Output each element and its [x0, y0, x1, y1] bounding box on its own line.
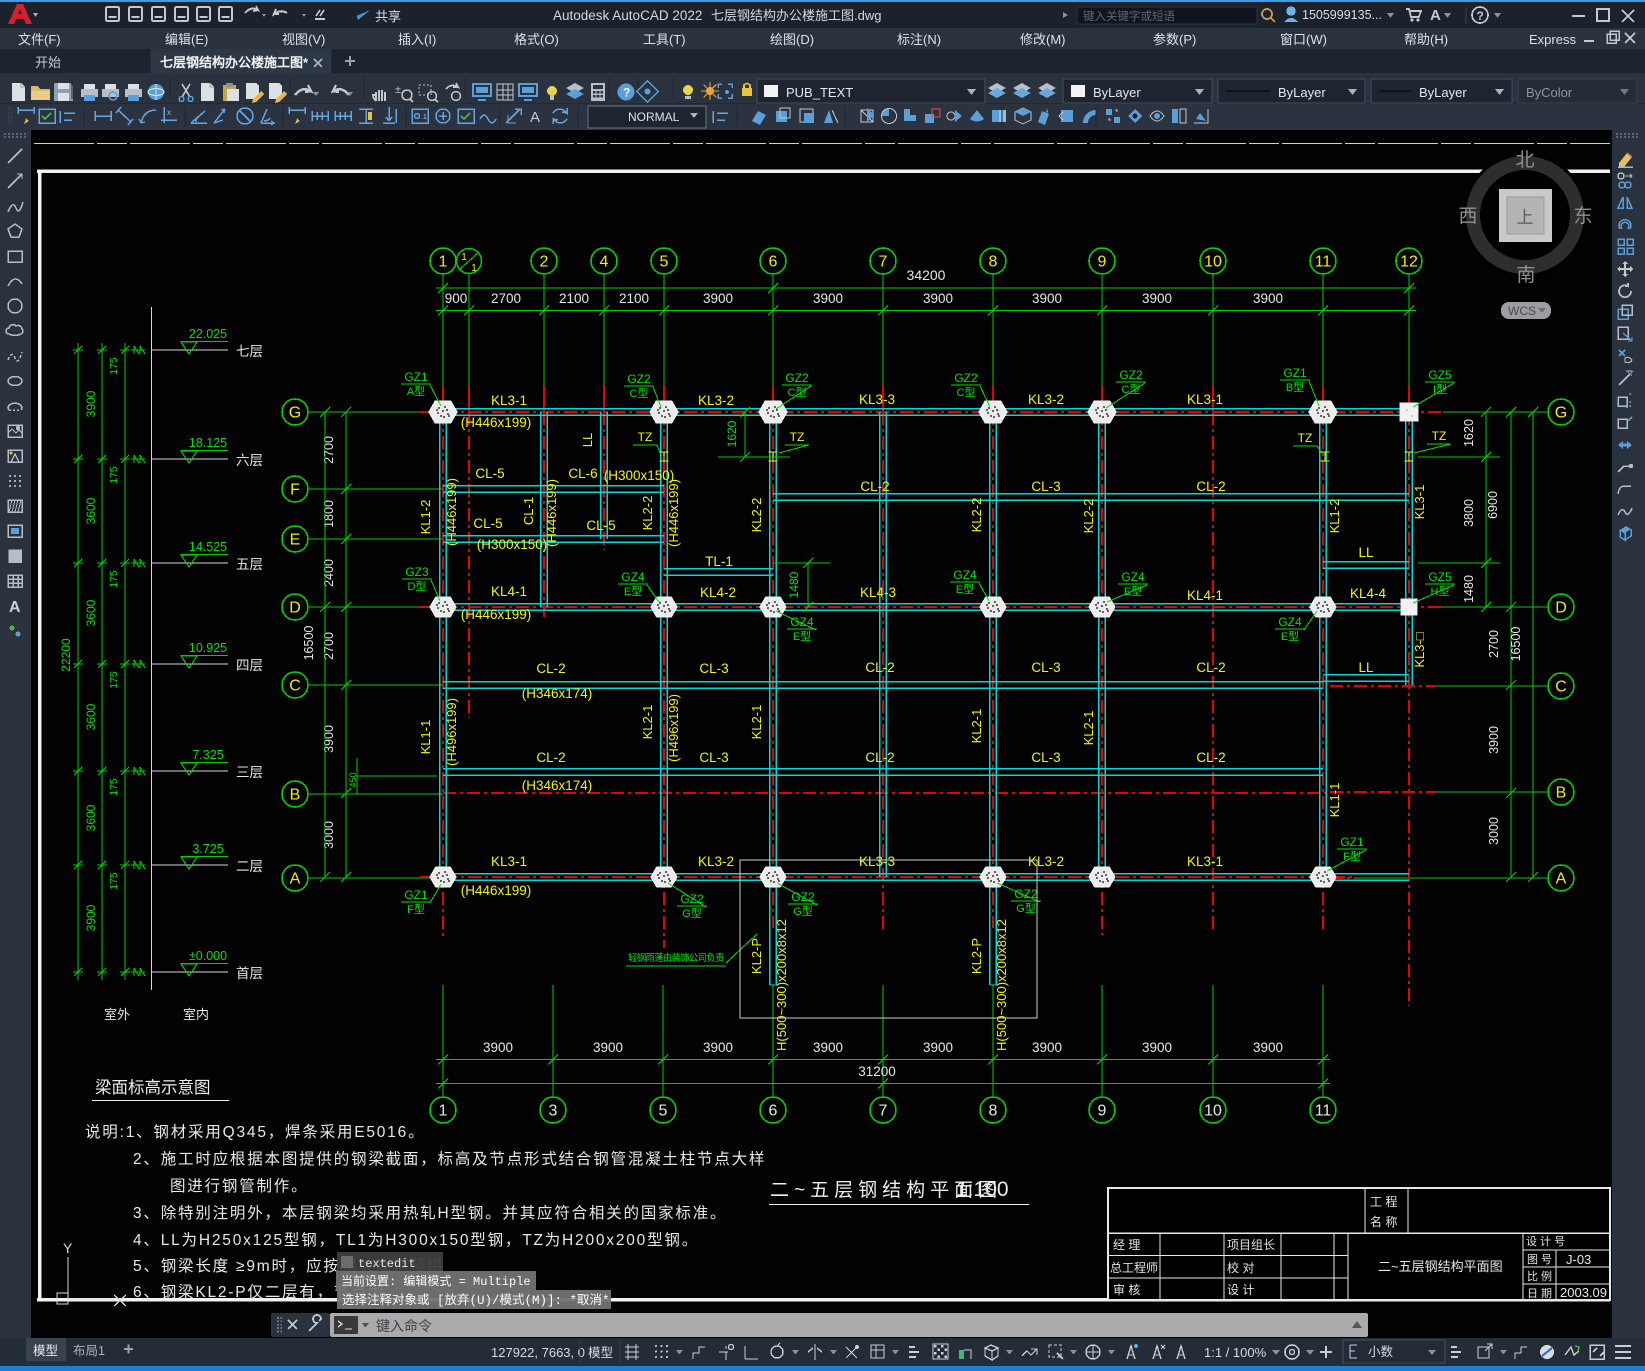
- svg-text:KL3-3: KL3-3: [859, 854, 895, 869]
- svg-text:H(500~300)x200x8x12: H(500~300)x200x8x12: [994, 919, 1009, 1051]
- svg-text:(H446x199): (H446x199): [444, 478, 459, 546]
- svg-text:2700: 2700: [322, 632, 336, 660]
- svg-text:NORMAL: NORMAL: [628, 110, 680, 124]
- svg-text:D: D: [1555, 600, 1567, 617]
- svg-text:2、施工时应根据本图提供的钢梁截面，标高及节点形式结合钢管混: 2、施工时应根据本图提供的钢梁截面，标高及节点形式结合钢管混凝土柱节点大样: [133, 1149, 766, 1168]
- svg-text:ByLayer: ByLayer: [1419, 85, 1467, 100]
- svg-text:GZ2: GZ2: [954, 371, 978, 385]
- svg-text:3600: 3600: [84, 804, 98, 831]
- svg-text:3900: 3900: [84, 904, 98, 931]
- svg-text:CL-5: CL-5: [473, 516, 502, 531]
- svg-text:GZ2: GZ2: [627, 372, 651, 386]
- svg-text:2003.09: 2003.09: [1560, 1285, 1607, 1300]
- svg-text:KL4-3: KL4-3: [860, 585, 896, 600]
- svg-text:KL4-4: KL4-4: [1350, 586, 1387, 601]
- svg-text:名 称: 名 称: [1370, 1214, 1397, 1229]
- svg-text:7: 7: [879, 254, 888, 271]
- svg-text:6: 6: [769, 1103, 778, 1120]
- svg-text:KL1-2: KL1-2: [418, 500, 433, 535]
- svg-text:14.525: 14.525: [189, 540, 227, 554]
- svg-text:TZ: TZ: [638, 430, 653, 444]
- svg-text:梁面标高示意图: 梁面标高示意图: [95, 1078, 211, 1097]
- svg-text:二~五层钢结构平面图: 二~五层钢结构平面图: [1378, 1259, 1503, 1274]
- svg-text:3900: 3900: [813, 291, 843, 306]
- svg-text:室外: 室外: [104, 1007, 130, 1022]
- svg-text:1800: 1800: [322, 500, 336, 528]
- svg-text:当前设置: 编辑模式 = Multiple: 当前设置: 编辑模式 = Multiple: [341, 1273, 531, 1289]
- svg-text:KL3-1: KL3-1: [491, 393, 527, 408]
- svg-text:3900: 3900: [703, 291, 733, 306]
- svg-text:2400: 2400: [322, 559, 336, 587]
- svg-text:KL2-2: KL2-2: [969, 498, 984, 533]
- svg-text:校 对: 校 对: [1227, 1260, 1254, 1275]
- svg-text:KL3-1: KL3-1: [1412, 485, 1427, 520]
- svg-text:GZ4: GZ4: [1278, 615, 1302, 629]
- svg-text:1: 1: [439, 254, 448, 271]
- svg-text:12: 12: [1400, 254, 1418, 271]
- svg-text:7.325: 7.325: [192, 748, 223, 762]
- svg-text:设 计: 设 计: [1227, 1283, 1254, 1297]
- svg-text:布局1: 布局1: [73, 1344, 105, 1358]
- svg-text:C型: C型: [957, 385, 976, 399]
- svg-text:共享: 共享: [375, 9, 401, 24]
- svg-text:3900: 3900: [923, 1040, 953, 1055]
- svg-text:3、除特别注明外，本层钢梁均采用热轧H型钢。并其应符合相关的: 3、除特别注明外，本层钢梁均采用热轧H型钢。并其应符合相关的国家标准。: [133, 1203, 727, 1222]
- svg-text:GZ1: GZ1: [404, 888, 428, 902]
- svg-text:10: 10: [1204, 254, 1222, 271]
- svg-text:G: G: [1555, 405, 1567, 422]
- svg-text:Y: Y: [63, 1240, 73, 1256]
- svg-text:CL-2: CL-2: [865, 660, 894, 675]
- svg-text:CL-3: CL-3: [699, 661, 728, 676]
- svg-text:C型: C型: [630, 386, 649, 400]
- svg-text:GZ3: GZ3: [405, 565, 429, 579]
- svg-text:2100: 2100: [619, 291, 649, 306]
- svg-text:日 期: 日 期: [1527, 1287, 1552, 1300]
- svg-text:小数: 小数: [1368, 1344, 1394, 1359]
- svg-text:参数(P): 参数(P): [1153, 32, 1196, 47]
- svg-text:CL-3: CL-3: [1031, 750, 1060, 765]
- svg-text:±: ±: [395, 84, 401, 96]
- svg-text:3900: 3900: [322, 725, 336, 753]
- svg-text:18.125: 18.125: [189, 436, 227, 450]
- svg-text:KL2-1: KL2-1: [1081, 711, 1096, 746]
- svg-text:GZ1: GZ1: [1283, 366, 1307, 380]
- svg-text:22200: 22200: [59, 638, 73, 672]
- svg-text:KL2-2: KL2-2: [749, 498, 764, 533]
- svg-text:南: 南: [1516, 264, 1535, 286]
- svg-text:1:1 / 100%: 1:1 / 100%: [1204, 1345, 1267, 1360]
- svg-text:B型: B型: [1286, 380, 1304, 394]
- svg-text:GZ1: GZ1: [1340, 835, 1364, 849]
- svg-text:CL-6: CL-6: [568, 466, 597, 481]
- svg-text:22.025: 22.025: [189, 327, 227, 341]
- svg-text:KL1-2: KL1-2: [1327, 499, 1342, 534]
- svg-text:3800: 3800: [1462, 499, 1476, 527]
- svg-text:3900: 3900: [84, 390, 98, 417]
- svg-text:ByLayer: ByLayer: [1278, 85, 1326, 100]
- svg-text:(H446x199): (H446x199): [461, 415, 532, 430]
- svg-text:GZ4: GZ4: [621, 570, 645, 584]
- svg-text:3900: 3900: [703, 1040, 733, 1055]
- svg-text:H(500~300)x200x8x12: H(500~300)x200x8x12: [774, 919, 789, 1051]
- svg-text:3900: 3900: [1253, 291, 1283, 306]
- svg-text:CL-2: CL-2: [536, 750, 565, 765]
- svg-text:3: 3: [549, 1103, 558, 1120]
- svg-text:?: ?: [1477, 9, 1484, 23]
- svg-text:修改(M): 修改(M): [1020, 32, 1066, 47]
- svg-text:3000: 3000: [1487, 817, 1501, 845]
- svg-text:3600: 3600: [84, 497, 98, 524]
- svg-text:PUB_TEXT: PUB_TEXT: [786, 85, 853, 100]
- svg-text:五层: 五层: [236, 557, 263, 572]
- svg-text:4: 4: [600, 254, 609, 271]
- svg-text:3900: 3900: [1487, 726, 1501, 754]
- svg-text:C: C: [1555, 679, 1567, 696]
- svg-text:首层: 首层: [236, 966, 263, 981]
- svg-text:TL-1: TL-1: [705, 554, 733, 569]
- svg-text:34200: 34200: [907, 267, 946, 283]
- svg-text:GZ1: GZ1: [404, 370, 428, 384]
- svg-text:3900: 3900: [1253, 1040, 1283, 1055]
- svg-text:选择注释对象或 [放弃(U)/模式(M)]: *取消*: 选择注释对象或 [放弃(U)/模式(M)]: *取消*: [342, 1292, 610, 1308]
- svg-text:文件(F): 文件(F): [18, 32, 61, 47]
- svg-text:A: A: [1556, 871, 1567, 888]
- svg-text:B: B: [290, 787, 301, 804]
- svg-text:KL3-1: KL3-1: [491, 854, 527, 869]
- svg-text:16500: 16500: [1509, 627, 1523, 662]
- svg-text:G型: G型: [793, 904, 813, 918]
- svg-text:3600: 3600: [84, 703, 98, 730]
- svg-text:GZ5: GZ5: [1428, 368, 1452, 382]
- svg-text:东: 东: [1573, 205, 1592, 227]
- svg-text:七层钢结构办公楼施工图*: 七层钢结构办公楼施工图*: [160, 55, 309, 70]
- svg-text:总工程师: 总工程师: [1110, 1260, 1158, 1275]
- svg-text:工具(T): 工具(T): [643, 32, 686, 47]
- svg-text:E型: E型: [624, 584, 642, 598]
- svg-text:绘图(D): 绘图(D): [770, 32, 814, 47]
- svg-text:GZ2: GZ2: [1119, 368, 1143, 382]
- svg-text:KL2-1: KL2-1: [969, 709, 984, 744]
- svg-text:ByColor: ByColor: [1526, 85, 1573, 100]
- svg-text:KL2-2: KL2-2: [1081, 499, 1096, 534]
- svg-text:模型: 模型: [33, 1344, 58, 1358]
- svg-text:CL-2: CL-2: [1196, 660, 1225, 675]
- svg-text:CL-2: CL-2: [1196, 479, 1225, 494]
- svg-text:设 计 号: 设 计 号: [1526, 1235, 1565, 1248]
- svg-text:1620: 1620: [725, 420, 739, 447]
- svg-text:9: 9: [1098, 254, 1107, 271]
- svg-text:项目组长: 项目组长: [1227, 1238, 1275, 1252]
- svg-text:6: 6: [769, 254, 778, 271]
- svg-text:(H446x199): (H446x199): [666, 479, 681, 547]
- svg-text:(H300x150): (H300x150): [477, 537, 548, 552]
- svg-text:X: X: [167, 111, 171, 117]
- svg-text:Autodesk AutoCAD 2022: Autodesk AutoCAD 2022: [553, 8, 702, 23]
- svg-text:175: 175: [108, 357, 120, 375]
- svg-text:(H446x199): (H446x199): [544, 479, 559, 547]
- svg-text:GZ4: GZ4: [1121, 570, 1145, 584]
- svg-text:三层: 三层: [236, 765, 263, 780]
- svg-text:E型: E型: [1281, 629, 1299, 643]
- svg-text:3900: 3900: [1032, 1040, 1062, 1055]
- svg-text:图进行钢管制作。: 图进行钢管制作。: [170, 1177, 308, 1195]
- svg-text:审 核: 审 核: [1113, 1282, 1140, 1297]
- svg-text:C型: C型: [1122, 382, 1141, 396]
- svg-text:KL3-2: KL3-2: [1028, 392, 1064, 407]
- svg-text:9: 9: [1098, 1103, 1107, 1120]
- svg-text:11: 11: [1315, 254, 1332, 271]
- svg-text:3900: 3900: [813, 1040, 843, 1055]
- svg-text:KL4-2: KL4-2: [700, 585, 736, 600]
- svg-text:10: 10: [1204, 1103, 1222, 1120]
- svg-text:175: 175: [108, 570, 120, 588]
- svg-text:标注(N): 标注(N): [897, 32, 941, 47]
- svg-text:E型: E型: [793, 629, 811, 643]
- svg-text:室内: 室内: [183, 1007, 209, 1022]
- svg-text:CL-2: CL-2: [1196, 750, 1225, 765]
- svg-text:轻钢雨蓬由装饰公司负责: 轻钢雨蓬由装饰公司负责: [628, 952, 724, 964]
- svg-text:开始: 开始: [35, 55, 61, 70]
- svg-text:GZ5: GZ5: [1428, 570, 1452, 584]
- svg-text:A: A: [9, 599, 21, 616]
- svg-text:4、LL为H250x125型钢，TL1为H300x150型钢: 4、LL为H250x125型钢，TL1为H300x150型钢，TZ为H200x2…: [133, 1231, 699, 1249]
- svg-text:.1: .1: [421, 114, 427, 121]
- svg-text:工 程: 工 程: [1370, 1194, 1397, 1209]
- svg-text:LL: LL: [1358, 545, 1374, 560]
- svg-text:A: A: [530, 109, 540, 126]
- svg-text:七层: 七层: [236, 344, 263, 359]
- svg-text:KL3-2: KL3-2: [1028, 854, 1064, 869]
- svg-text:127922, 7663, 0: 127922, 7663, 0: [491, 1345, 585, 1360]
- svg-text:8: 8: [989, 254, 998, 271]
- svg-text:TZ: TZ: [1298, 431, 1313, 445]
- svg-text:WCS: WCS: [1508, 304, 1536, 318]
- svg-text:LL: LL: [580, 433, 595, 447]
- svg-text:C型: C型: [788, 385, 807, 399]
- svg-text:KL4-1: KL4-1: [1187, 588, 1223, 603]
- svg-text:CL-2: CL-2: [860, 479, 889, 494]
- svg-text:CL-3: CL-3: [699, 750, 728, 765]
- svg-text:LL: LL: [1358, 660, 1374, 675]
- svg-text:(H346x174): (H346x174): [522, 778, 593, 793]
- svg-text:(H496x199): (H496x199): [444, 698, 459, 766]
- svg-text:GZ2: GZ2: [785, 371, 809, 385]
- svg-text:CL-2: CL-2: [865, 750, 894, 765]
- svg-text:2700: 2700: [1487, 630, 1501, 658]
- svg-text:3.725: 3.725: [192, 842, 223, 856]
- svg-text:175: 175: [108, 671, 120, 689]
- svg-text:1620: 1620: [1462, 419, 1476, 447]
- svg-text:2700: 2700: [491, 291, 521, 306]
- svg-text:?: ?: [623, 86, 630, 100]
- svg-text:F型: F型: [407, 902, 425, 916]
- svg-text:G型: G型: [682, 906, 702, 920]
- svg-text:31200: 31200: [858, 1064, 896, 1079]
- svg-text:KL4-1: KL4-1: [491, 584, 527, 599]
- svg-text:1:100: 1:100: [956, 1178, 1009, 1201]
- svg-text:5: 5: [659, 1103, 668, 1120]
- svg-text:G: G: [289, 405, 301, 422]
- svg-text:KL1-1: KL1-1: [1327, 783, 1342, 818]
- svg-text:1505999135...: 1505999135...: [1302, 8, 1382, 22]
- svg-text:900: 900: [445, 291, 468, 306]
- svg-text:textedit: textedit: [358, 1257, 416, 1271]
- svg-text:J-03: J-03: [1566, 1252, 1591, 1267]
- svg-text:说明:1、钢材采用Q345，焊条采用E5016。: 说明:1、钢材采用Q345，焊条采用E5016。: [85, 1123, 425, 1141]
- svg-text:KL1-1: KL1-1: [418, 720, 433, 755]
- svg-text:±0.000: ±0.000: [189, 949, 227, 963]
- svg-text:TZ: TZ: [790, 430, 805, 444]
- svg-text:六层: 六层: [236, 453, 263, 468]
- svg-text:格式(O): 格式(O): [514, 32, 559, 47]
- svg-text:TZ: TZ: [1432, 429, 1447, 443]
- svg-text:西: 西: [1458, 206, 1477, 227]
- svg-text:1: 1: [461, 252, 467, 263]
- svg-text:KL2-2: KL2-2: [640, 496, 655, 531]
- svg-text:D: D: [289, 600, 301, 617]
- svg-text:CL-5: CL-5: [475, 466, 504, 481]
- svg-text:键入命令: 键入命令: [376, 1318, 432, 1334]
- svg-text:KL3-2: KL3-2: [698, 393, 734, 408]
- svg-text:KL3-3: KL3-3: [859, 392, 895, 407]
- svg-text:175: 175: [108, 872, 120, 890]
- svg-text:七层钢结构办公楼施工图.dwg: 七层钢结构办公楼施工图.dwg: [711, 8, 881, 23]
- svg-text:5: 5: [660, 254, 669, 271]
- svg-text:1: 1: [471, 263, 477, 274]
- svg-text:(H300x150): (H300x150): [604, 468, 675, 483]
- svg-text:2700: 2700: [322, 436, 336, 464]
- svg-text:10.925: 10.925: [189, 641, 227, 655]
- svg-text:比 例: 比 例: [1527, 1269, 1552, 1283]
- svg-text:CL-5: CL-5: [586, 518, 615, 533]
- svg-text:北: 北: [1515, 149, 1534, 171]
- svg-text:KL3-1: KL3-1: [1187, 854, 1223, 869]
- svg-text:编辑(E): 编辑(E): [165, 32, 208, 47]
- svg-text:二层: 二层: [236, 859, 263, 874]
- svg-text:CL-3: CL-3: [1031, 479, 1060, 494]
- svg-text:(H496x199): (H496x199): [666, 694, 681, 762]
- svg-text:3000: 3000: [322, 821, 336, 849]
- svg-text:KL3-2: KL3-2: [698, 854, 734, 869]
- svg-text:D型: D型: [408, 579, 427, 593]
- svg-text:7: 7: [879, 1103, 888, 1120]
- svg-text:KL2-1: KL2-1: [749, 705, 764, 740]
- svg-text:E型: E型: [956, 582, 974, 596]
- svg-text:(H446x199): (H446x199): [461, 883, 532, 898]
- svg-text:1480: 1480: [1462, 575, 1476, 603]
- svg-text:四层: 四层: [236, 658, 263, 673]
- svg-text:帮助(H): 帮助(H): [1404, 32, 1448, 47]
- svg-text:KL3-1: KL3-1: [1187, 392, 1223, 407]
- svg-text:11: 11: [1315, 1103, 1332, 1120]
- svg-text:2: 2: [540, 254, 549, 271]
- svg-text:键入关键字或短语: 键入关键字或短语: [1083, 9, 1175, 23]
- svg-text:f: f: [1046, 110, 1048, 117]
- svg-text:上: 上: [1517, 208, 1534, 227]
- svg-text:3900: 3900: [1032, 291, 1062, 306]
- svg-text:F: F: [290, 482, 300, 499]
- svg-text:175: 175: [108, 466, 120, 484]
- svg-text:模型: 模型: [588, 1346, 613, 1360]
- svg-text:3900: 3900: [483, 1040, 513, 1055]
- svg-text:1: 1: [439, 1103, 448, 1120]
- svg-text:图 号: 图 号: [1527, 1253, 1552, 1266]
- svg-text:B: B: [1556, 785, 1567, 802]
- svg-text:3900: 3900: [1142, 1040, 1172, 1055]
- svg-text:ByLayer: ByLayer: [1093, 85, 1141, 100]
- svg-text:KL3-□: KL3-□: [1412, 632, 1427, 667]
- svg-text:Express: Express: [1529, 32, 1576, 47]
- svg-text:A型: A型: [407, 384, 425, 398]
- svg-text:C: C: [289, 678, 301, 695]
- svg-text:16500: 16500: [302, 626, 316, 661]
- svg-text:(H346x174): (H346x174): [522, 686, 593, 701]
- svg-text:KL2-P: KL2-P: [749, 938, 764, 974]
- svg-text:3900: 3900: [1142, 291, 1172, 306]
- svg-text:3900: 3900: [923, 291, 953, 306]
- svg-text:(H446x199): (H446x199): [461, 607, 532, 622]
- svg-text:A: A: [290, 871, 301, 888]
- svg-text:GZ2: GZ2: [1014, 887, 1038, 901]
- svg-text:E: E: [290, 532, 301, 549]
- svg-text:窗口(W): 窗口(W): [1280, 32, 1327, 47]
- svg-text:A: A: [1430, 7, 1441, 24]
- svg-text:6900: 6900: [1486, 491, 1500, 519]
- svg-text:175: 175: [108, 778, 120, 796]
- svg-text:GZ4: GZ4: [953, 568, 977, 582]
- svg-text:CL-2: CL-2: [536, 661, 565, 676]
- svg-text:KL2-1: KL2-1: [640, 705, 655, 740]
- svg-text:插入(I): 插入(I): [398, 32, 436, 47]
- svg-text:3900: 3900: [593, 1040, 623, 1055]
- svg-text:CL-3: CL-3: [1031, 660, 1060, 675]
- svg-text:经 理: 经 理: [1113, 1238, 1140, 1252]
- svg-text:G型: G型: [1016, 901, 1036, 915]
- svg-text:8: 8: [989, 1103, 998, 1120]
- svg-text:KL2-P: KL2-P: [969, 938, 984, 974]
- svg-text:2100: 2100: [559, 291, 589, 306]
- svg-text:CL-1: CL-1: [521, 497, 536, 525]
- svg-text:1480: 1480: [787, 571, 801, 598]
- svg-text:3600: 3600: [84, 599, 98, 626]
- svg-text:视图(V): 视图(V): [282, 32, 325, 47]
